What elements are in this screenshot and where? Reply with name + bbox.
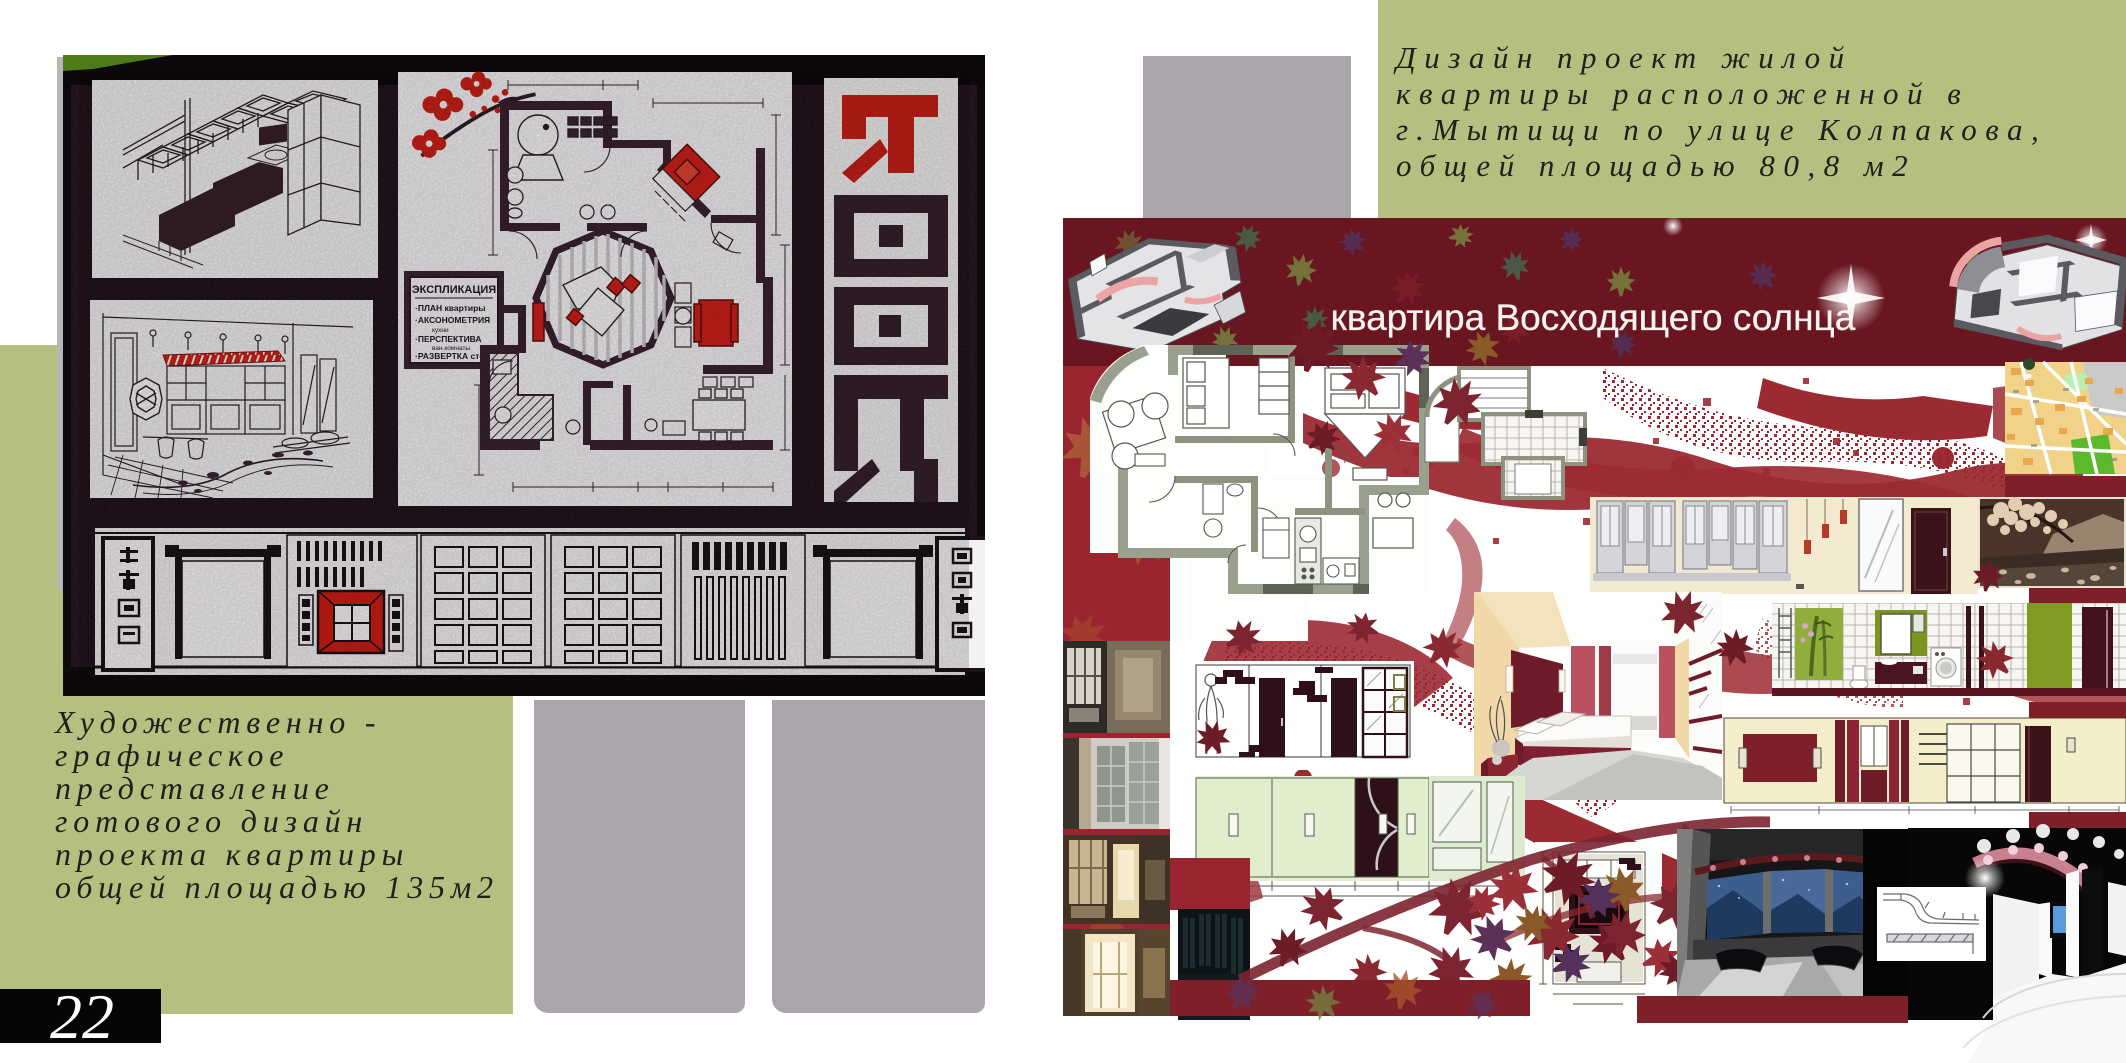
svg-text:квартира Восходящего солнца: квартира Восходящего солнца (1331, 297, 1856, 338)
